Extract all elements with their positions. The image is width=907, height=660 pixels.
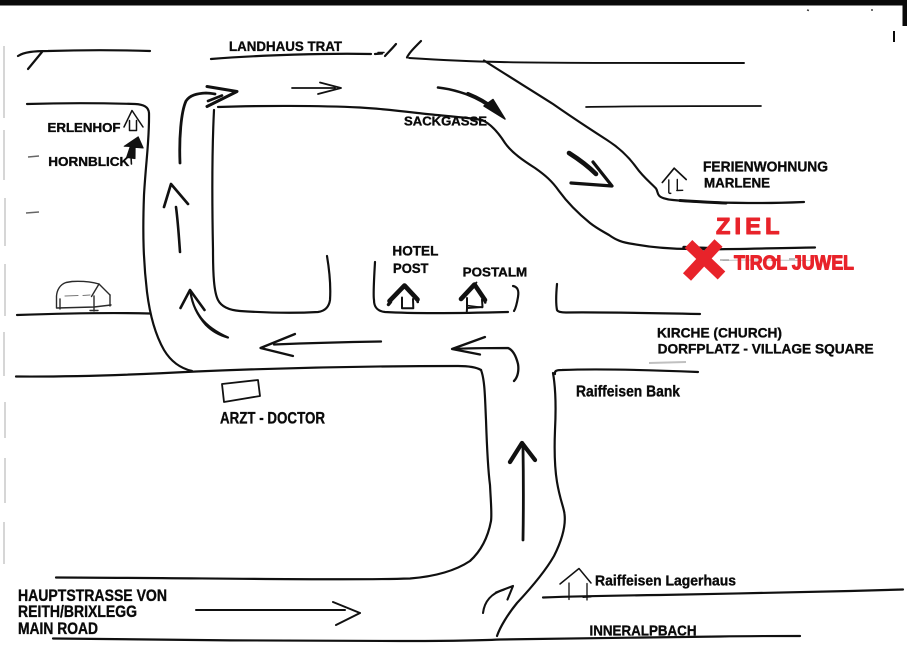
svg-text:INNERALPBACH: INNERALPBACH — [590, 623, 697, 640]
svg-text:KIRCHE (CHURCH): KIRCHE (CHURCH) — [657, 325, 782, 341]
svg-text:POSTALM: POSTALM — [463, 265, 528, 280]
svg-text:TIROL JUWEL: TIROL JUWEL — [734, 253, 854, 275]
svg-text:FERIENWOHNUNG: FERIENWOHNUNG — [703, 160, 828, 176]
svg-text:Raiffeisen Bank: Raiffeisen Bank — [576, 384, 680, 401]
svg-text:MAIN ROAD: MAIN ROAD — [18, 620, 98, 638]
svg-text:Raiffeisen Lagerhaus: Raiffeisen Lagerhaus — [595, 574, 736, 590]
svg-text:MARLENE: MARLENE — [704, 176, 770, 191]
svg-text:POST: POST — [393, 260, 429, 276]
svg-text:HOTEL: HOTEL — [392, 243, 438, 259]
svg-text:LANDHAUS TRAT: LANDHAUS TRAT — [229, 38, 342, 54]
svg-text:ERLENHOF: ERLENHOF — [48, 121, 121, 135]
svg-text:ARZT - DOCTOR: ARZT - DOCTOR — [220, 410, 325, 428]
svg-text:HORNBLICK: HORNBLICK — [48, 155, 129, 169]
svg-text:SACKGASSE: SACKGASSE — [404, 114, 487, 129]
svg-text:ZIEL: ZIEL — [716, 213, 784, 239]
svg-text:REITH/BRIXLEGG: REITH/BRIXLEGG — [18, 603, 137, 621]
svg-text:DORFPLATZ - VILLAGE SQUARE: DORFPLATZ - VILLAGE SQUARE — [658, 341, 874, 357]
